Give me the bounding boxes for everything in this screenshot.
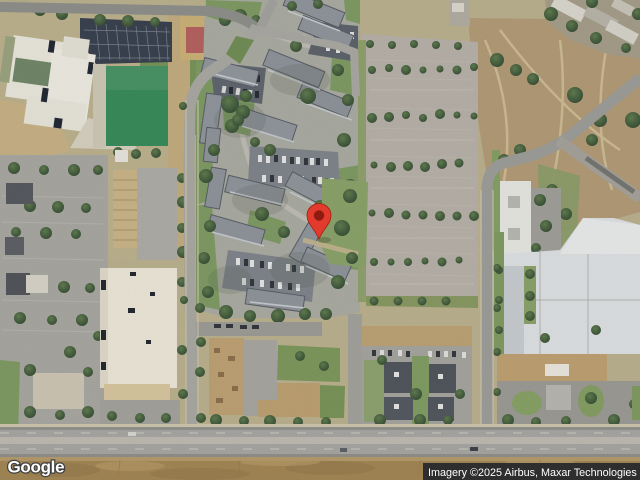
svg-text:Google: Google xyxy=(8,458,65,477)
svg-text:Imagery ©2025 Airbus, Maxar Te: Imagery ©2025 Airbus, Maxar Technologies xyxy=(428,467,637,479)
